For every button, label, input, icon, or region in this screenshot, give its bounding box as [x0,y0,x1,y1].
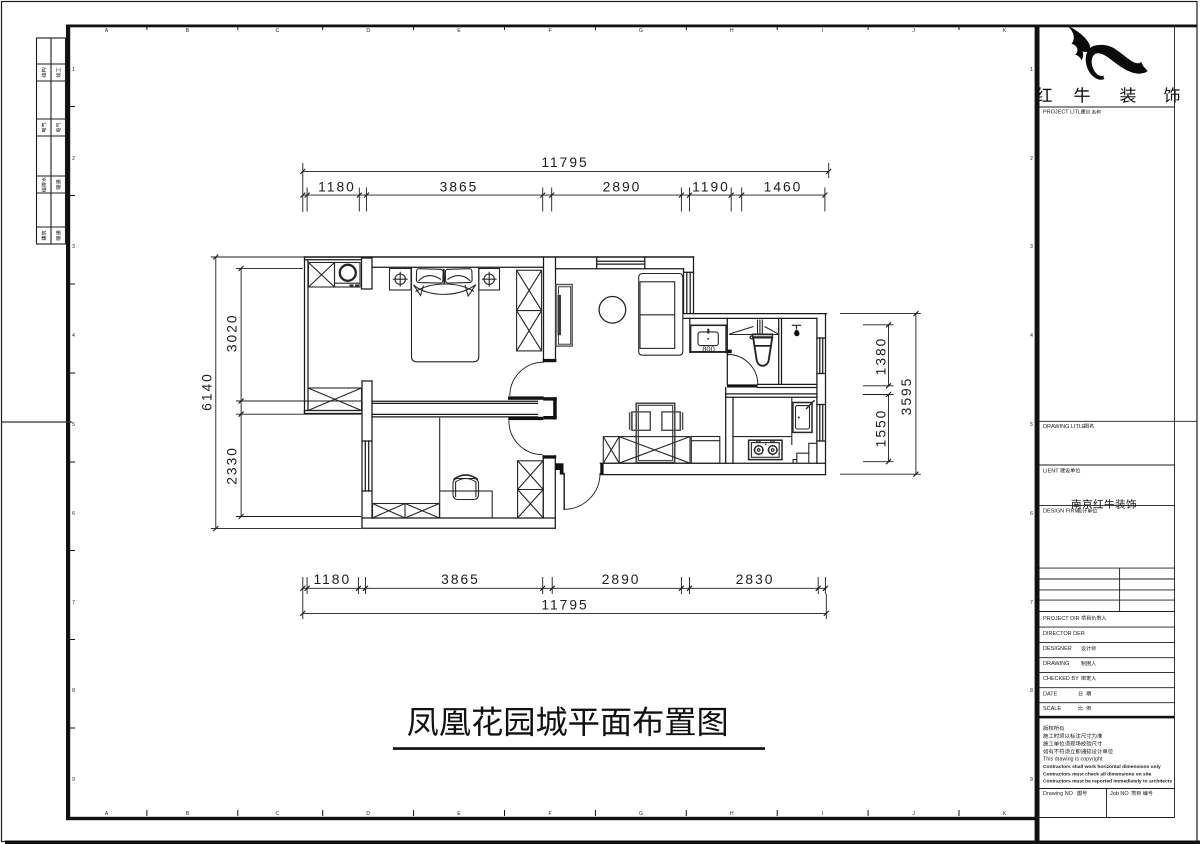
svg-text:C: C [275,28,279,34]
svg-text:C: C [275,811,279,817]
svg-text:Contractors shall work horizon: Contractors shall work horizontal dimens… [1043,764,1161,770]
svg-text:4: 4 [1030,333,1033,339]
svg-text:1380: 1380 [874,337,889,376]
svg-text:9: 9 [72,777,75,783]
svg-text:This drawing is copyright: This drawing is copyright [1043,756,1103,762]
svg-text:G: G [639,811,643,817]
svg-text:800: 800 [702,345,715,354]
svg-text:D: D [366,28,370,34]
svg-text:SCALE: SCALE [1043,706,1061,712]
svg-text:PROJECT LITLE: PROJECT LITLE [1043,110,1085,116]
svg-text:8: 8 [72,688,75,694]
svg-text:6: 6 [72,511,75,517]
svg-text:8: 8 [1030,688,1033,694]
svg-text:I: I [822,28,823,34]
svg-text:11795: 11795 [541,598,588,613]
svg-text:Job NO: Job NO [1110,791,1129,797]
svg-text:Contractors must check all dim: Contractors must check all dimensions on… [1043,771,1152,777]
svg-text:D: D [366,811,370,817]
svg-text:2890: 2890 [602,572,641,587]
svg-text:F: F [548,811,551,817]
svg-text:H: H [730,811,734,817]
svg-text:F: F [548,28,551,34]
svg-text:LIENT: LIENT [1043,468,1059,474]
svg-text:6: 6 [1030,511,1033,517]
svg-text:3865: 3865 [440,180,479,195]
svg-text:2330: 2330 [225,446,240,485]
svg-text:H: H [730,28,734,34]
svg-text:PROJECT DIR: PROJECT DIR [1043,616,1080,622]
svg-text:3595: 3595 [899,377,914,416]
svg-text:DRAWING LITLE: DRAWING LITLE [1043,424,1086,430]
svg-text:DRAWING: DRAWING [1043,661,1069,667]
svg-text:1460: 1460 [764,180,803,195]
svg-text:5: 5 [1030,422,1033,428]
svg-text:7: 7 [1030,600,1033,606]
svg-text:4: 4 [72,333,75,339]
svg-text:11795: 11795 [541,155,588,170]
svg-text:2: 2 [1030,156,1033,162]
svg-text:I: I [822,811,823,817]
svg-text:1: 1 [72,67,75,73]
svg-text:2830: 2830 [736,572,775,587]
svg-text:5: 5 [72,422,75,428]
svg-text:1180: 1180 [313,572,351,587]
svg-text:DESIGN FIRM: DESIGN FIRM [1043,509,1079,515]
svg-text:3865: 3865 [441,572,480,587]
svg-text:1190: 1190 [692,180,730,195]
svg-text:3: 3 [1030,244,1033,250]
svg-text:9: 9 [1030,777,1033,783]
svg-text:DESIGNER: DESIGNER [1043,646,1072,652]
svg-text:G: G [639,28,643,34]
svg-text:Contractors must be reported i: Contractors must be reported immediately… [1043,779,1172,785]
svg-text:Drawing NO: Drawing NO [1043,791,1074,797]
svg-text:DIRECTOR DER: DIRECTOR DER [1043,631,1085,637]
svg-text:2: 2 [72,156,75,162]
svg-text:CHECKED BY: CHECKED BY [1043,676,1079,682]
svg-text:1: 1 [1030,67,1033,73]
svg-text:3020: 3020 [225,313,240,352]
svg-text:2890: 2890 [603,180,642,195]
svg-text:1180: 1180 [318,180,356,195]
svg-text:3: 3 [72,244,75,250]
svg-text:6140: 6140 [200,372,215,411]
svg-text:1550: 1550 [874,409,889,448]
svg-text:DATE: DATE [1043,691,1058,697]
svg-text:7: 7 [72,600,75,606]
